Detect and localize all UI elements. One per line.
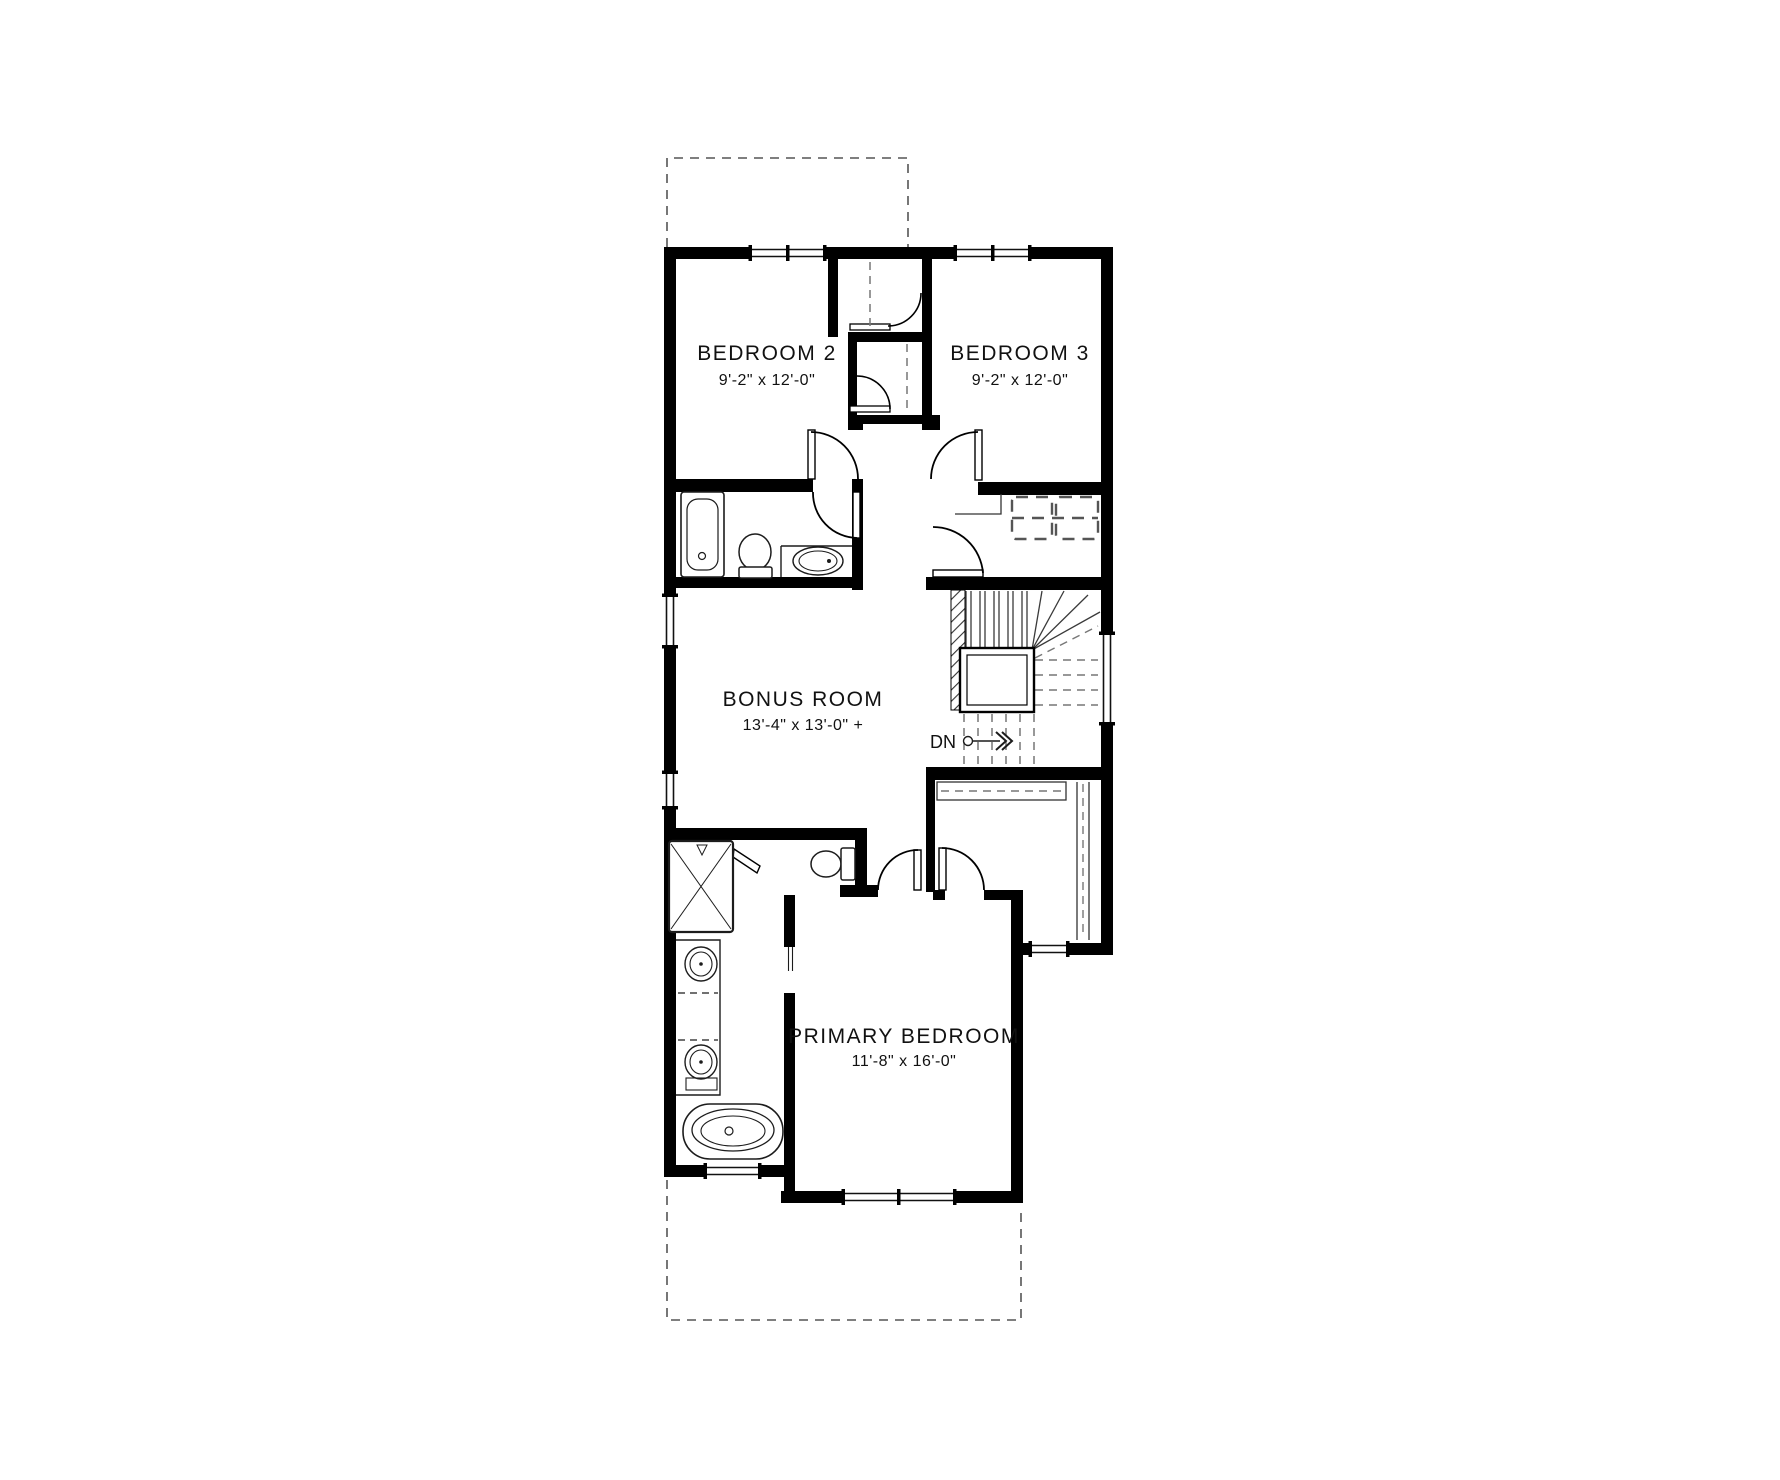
paper-background — [0, 0, 1780, 1480]
window-ensuite — [704, 1163, 762, 1179]
stairwell-void — [960, 648, 1034, 712]
window-bedroom3 — [954, 245, 1032, 261]
window-bonus-lower — [662, 771, 678, 810]
stair-dn-label: DN — [930, 732, 956, 752]
window-primary-bedroom — [842, 1189, 957, 1205]
primary-bedroom-dimensions: 11'-8" x 16'-0" — [852, 1053, 957, 1070]
bonus-room-dimensions: 13'-4" x 13'-0" + — [743, 717, 864, 734]
bathtub — [681, 492, 724, 577]
bedroom3-name: BEDROOM 3 — [950, 342, 1090, 365]
bonus-room-name: BONUS ROOM — [723, 688, 884, 711]
floor-plan-drawing: DN — [0, 0, 1780, 1480]
window-stair-landing — [1099, 632, 1115, 726]
window-bedroom2 — [749, 245, 827, 261]
primary-bedroom-name: PRIMARY BEDROOM — [788, 1025, 1020, 1048]
toilet-ensuite — [811, 848, 855, 880]
bedroom2-dimensions: 9'-2" x 12'-0" — [719, 372, 816, 389]
bedroom3-dimensions: 9'-2" x 12'-0" — [972, 372, 1069, 389]
window-wic — [1029, 941, 1070, 957]
shower — [669, 841, 733, 932]
floor-plan-page: DN — [0, 0, 1780, 1480]
vanity-sink-1 — [685, 947, 717, 981]
toilet — [739, 534, 772, 578]
bedroom2-name: BEDROOM 2 — [697, 342, 837, 365]
window-bonus-upper — [662, 594, 678, 649]
vanity-sink-2 — [685, 1045, 717, 1079]
freestanding-tub — [683, 1104, 783, 1159]
